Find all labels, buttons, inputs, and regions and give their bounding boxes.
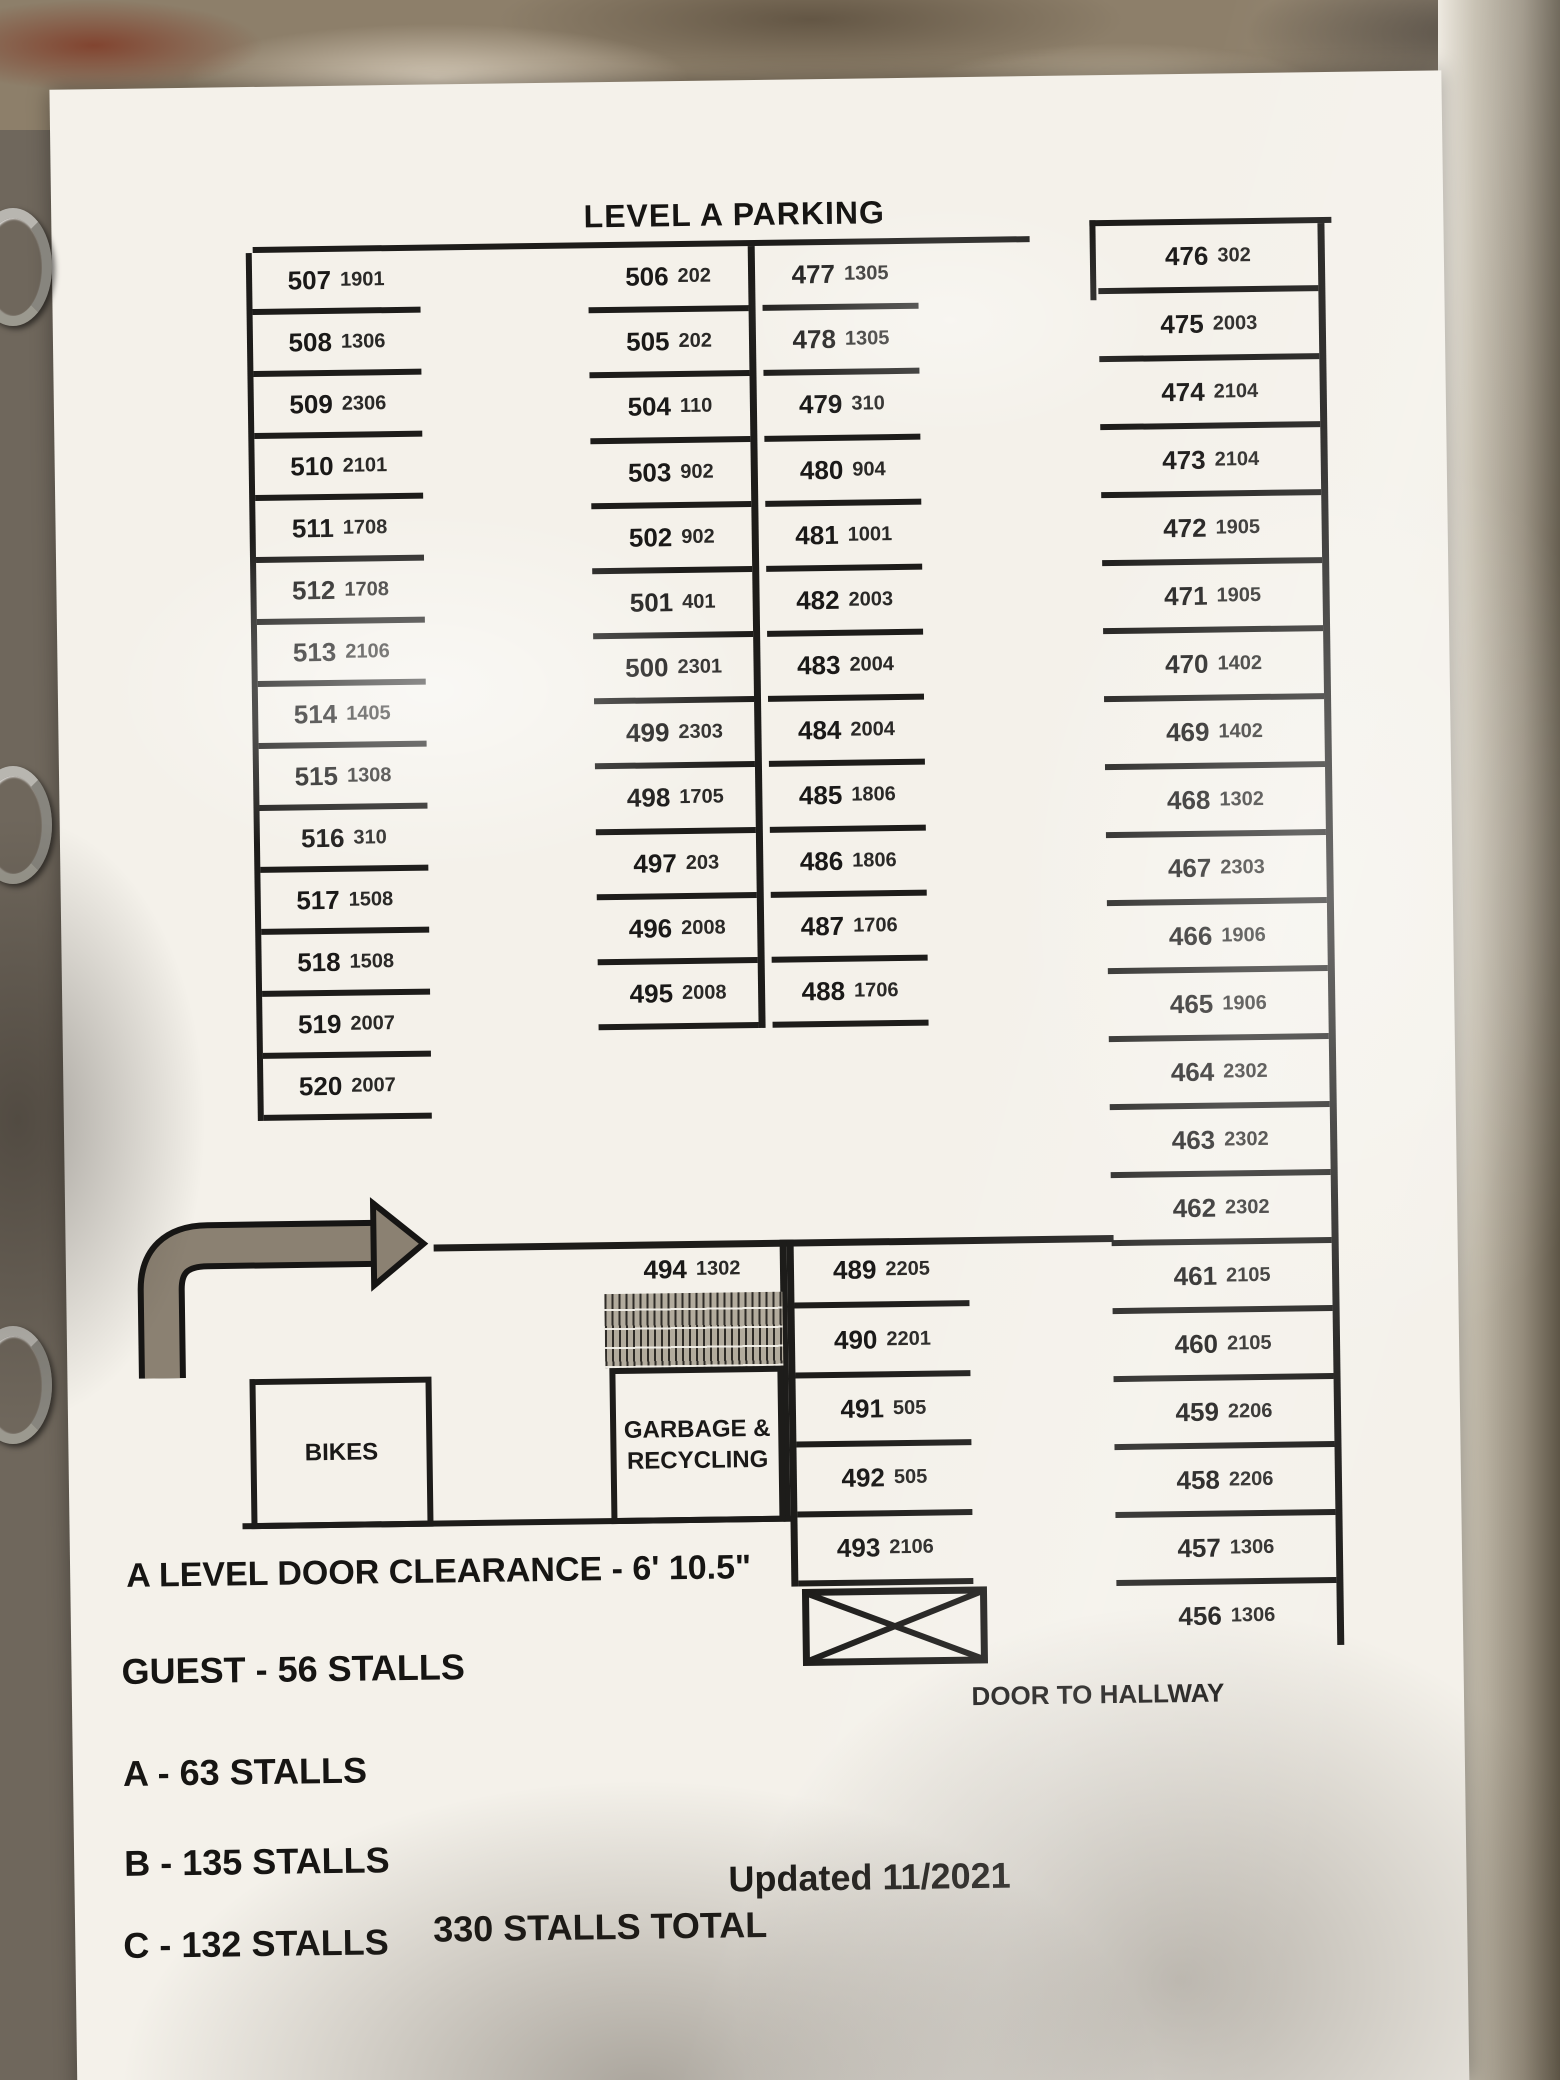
unit-number: 1508 [349,888,394,912]
stall-number: 483 [797,650,841,682]
bikes-label: BIKES [305,1438,379,1467]
unit-number: 1706 [854,979,899,1003]
stall-number: 497 [633,848,677,880]
stall-row: 491505 [796,1376,972,1448]
garbage-label-line2: RECYCLING [627,1444,769,1477]
stall-row: 479310 [764,374,921,441]
stall-number: 509 [289,388,333,420]
stall-row: 501401 [592,572,753,639]
stall-number: 516 [301,822,345,854]
stall-row: 516310 [260,809,429,873]
unit-number: 904 [852,458,886,481]
stall-row: 4701402 [1103,631,1324,702]
stall-row: 5111708 [255,499,424,563]
stall-row: 5202007 [263,1057,432,1121]
stall-column-507-520: 5071901508130650923065102101511170851217… [246,251,432,1121]
updated-date-note: Updated 11/2021 [728,1855,1011,1901]
unit-number: 110 [680,395,713,418]
door-clearance-note: A LEVEL DOOR CLEARANCE - 6' 10.5" [126,1548,751,1596]
unit-number: 2007 [351,1074,396,1098]
unit-number: 2104 [1214,379,1259,403]
unit-number: 1906 [1221,923,1266,947]
stall-number: 466 [1169,920,1213,952]
stall-row: 4992303 [594,702,755,769]
stall-row: 4871706 [771,895,928,962]
unit-number: 1405 [346,702,391,726]
stall-row: 4822003 [766,570,923,637]
unit-number: 1708 [343,516,388,540]
unit-number: 505 [894,1466,928,1489]
parking-map-sheet: LEVEL A PARKING 507190150813065092306510… [49,70,1469,2080]
stall-number: 469 [1166,716,1210,748]
stall-number: 459 [1175,1396,1219,1428]
unit-number: 2007 [350,1012,395,1036]
unit-number: 2302 [1223,1059,1268,1083]
bikes-room: BIKES [249,1377,433,1530]
stall-number: 501 [630,587,674,619]
unit-number: 1901 [340,268,385,292]
stall-number: 496 [629,913,673,945]
door-to-hallway-label: DOOR TO HALLWAY [943,1677,1253,1712]
stall-number: 512 [292,574,336,606]
guest-stalls-note: GUEST - 56 STALLS [121,1646,465,1693]
stall-row: 4832004 [767,635,924,702]
stall-number: 475 [1160,308,1204,340]
binder-photo: LEVEL A PARKING 507190150813065092306510… [0,0,1560,2080]
stall-row: 5071901 [252,251,421,315]
stall-number: 458 [1176,1464,1220,1496]
stall-row: 5132106 [257,623,426,687]
unit-number: 2201 [886,1327,931,1351]
unit-number: 1905 [1215,515,1260,539]
stall-row: 4721905 [1101,495,1322,566]
page-title: LEVEL A PARKING [534,193,934,236]
stairs-hatch [604,1292,783,1368]
stall-column-506-495: 5062025052025041105039025029025014015002… [588,246,766,1030]
stall-row: 5151308 [259,747,428,811]
stall-number: 461 [1173,1260,1217,1292]
stall-number: 490 [834,1324,878,1356]
stall-row: 497203 [596,833,757,900]
stall-row: 4952008 [598,963,759,1030]
stall-number: 493 [837,1532,881,1564]
unit-number: 1806 [852,849,897,873]
unit-number: 2105 [1227,1331,1272,1355]
unit-number: 2206 [1228,1399,1273,1423]
stall-number: 513 [293,636,337,668]
stall-row: 5192007 [262,995,431,1059]
level-a-parking-diagram: LEVEL A PARKING 507190150813065092306510… [0,0,1560,2080]
unit-number: 2004 [849,653,894,677]
level-a-stalls-note: A - 63 STALLS [123,1750,368,1795]
stall-row: 4711905 [1102,563,1323,634]
stall-number: 488 [801,976,845,1008]
unit-number: 1508 [349,950,394,974]
unit-number: 302 [1217,244,1251,267]
stall-number: 462 [1172,1192,1216,1224]
stall-number: 485 [799,780,843,812]
stall-row: 4681302 [1105,767,1326,838]
stall-number: 473 [1162,444,1206,476]
stall-number: 507 [287,264,331,296]
stall-row: 4851806 [769,765,926,832]
stall-number: 499 [626,717,670,749]
stall-number: 472 [1163,512,1207,544]
stall-row: 494 1302 [604,1246,781,1292]
unit-number: 2205 [885,1258,930,1282]
stall-number: 476 [1165,240,1209,272]
stall-row: 5181508 [261,933,430,997]
stall-number: 494 [643,1254,687,1286]
stall-row: 5102101 [254,437,423,501]
stall-row: 5081306 [253,313,422,377]
stall-number: 465 [1170,988,1214,1020]
unit-number: 2306 [342,392,387,416]
stall-row: 4632302 [1110,1107,1331,1178]
stall-column-477-488: 4771305478130547931048090448110014822003… [762,244,929,1028]
unit-number: 1402 [1217,651,1262,675]
door-symbol [801,1586,988,1667]
stall-row: 4622302 [1111,1175,1332,1246]
stall-row: 4602105 [1113,1311,1334,1382]
stall-row: 4752003 [1098,291,1319,362]
unit-number: 2302 [1225,1195,1270,1219]
stall-number: 520 [299,1070,343,1102]
stall-row: 4892205 [794,1237,970,1309]
stall-number: 506 [625,261,669,293]
stall-number: 495 [629,978,673,1010]
stall-row: 503902 [590,442,751,509]
stall-number: 500 [625,652,669,684]
unit-number: 202 [677,265,711,288]
stall-number: 486 [800,845,844,877]
stall-row: 480904 [764,439,921,506]
stall-number: 456 [1178,1600,1222,1632]
stall-row: 4902201 [795,1306,971,1378]
unit-number: 1302 [696,1257,741,1281]
unit-number: 2004 [850,718,895,742]
unit-number: 202 [678,330,712,353]
stall-row: 4642302 [1109,1039,1330,1110]
stall-number: 503 [628,457,672,489]
stall-row: 4742104 [1099,359,1320,430]
stall-row: 4732104 [1100,427,1321,498]
unit-number: 1708 [344,578,389,602]
stall-row: 4561306 [1116,1583,1337,1648]
stall-number: 478 [792,324,836,356]
stall-row: 5092306 [253,375,422,439]
unit-number: 2105 [1226,1263,1271,1287]
unit-number: 1305 [845,327,890,351]
stall-number: 514 [294,698,338,730]
unit-number: 1308 [347,764,392,788]
stall-number: 504 [627,392,671,424]
unit-number: 2101 [342,454,387,478]
unit-number: 2106 [889,1535,934,1559]
stall-number: 511 [292,512,334,544]
stall-number: 492 [841,1463,885,1495]
stall-row: 502902 [591,507,752,574]
stall-number: 519 [298,1008,342,1040]
stall-row: 4582206 [1115,1447,1336,1518]
garbage-label-line1: GARBAGE & [624,1413,771,1446]
unit-number: 1706 [853,914,898,938]
turn-right-arrow-icon [121,1191,436,1395]
stall-number: 505 [626,326,670,358]
unit-number: 401 [682,590,716,613]
stall-number: 502 [629,522,673,554]
stall-row: 4612105 [1112,1243,1333,1314]
unit-number: 1905 [1216,583,1261,607]
stall-row: 505202 [589,311,750,378]
stall-row: 4661906 [1107,903,1328,974]
stall-number: 460 [1174,1328,1218,1360]
stall-number: 480 [800,454,844,486]
unit-number: 203 [686,851,720,874]
stall-number: 508 [288,326,332,358]
stall-number: 470 [1165,648,1209,680]
unit-number: 2008 [682,981,727,1005]
stall-number: 464 [1171,1056,1215,1088]
stall-row: 506202 [588,246,749,313]
unit-number: 2003 [848,588,893,612]
stall-number: 510 [290,450,334,482]
stall-row: 5171508 [260,871,429,935]
stall-row: 4811001 [765,504,922,571]
unit-number: 1705 [679,786,724,810]
unit-number: 1306 [1231,1603,1276,1627]
stall-row: 5002301 [593,637,754,704]
stall-row: 4861806 [770,830,927,897]
stall-row: 5121708 [256,561,425,625]
stall-row: 4881706 [772,961,929,1028]
unit-number: 2003 [1213,311,1258,335]
stall-number: 468 [1167,784,1211,816]
unit-number: 1305 [844,262,889,286]
stall-row: 4962008 [597,898,758,965]
stall-number: 489 [833,1255,877,1287]
level-c-stalls-note: C - 132 STALLS [123,1921,389,1967]
stall-row: 4781305 [763,309,920,376]
unit-number: 2206 [1229,1467,1274,1491]
unit-number: 505 [893,1397,927,1420]
stall-number: 457 [1177,1532,1221,1564]
stall-number: 463 [1172,1124,1216,1156]
stall-row: 4932106 [797,1515,973,1587]
unit-number: 1806 [851,784,896,808]
unit-number: 1306 [341,330,386,354]
unit-number: 1402 [1218,719,1263,743]
stall-number: 491 [840,1393,884,1425]
stall-row: 4672303 [1106,835,1327,906]
stall-number: 467 [1168,852,1212,884]
stall-row: 4842004 [768,700,925,767]
garbage-recycling-room: GARBAGE & RECYCLING [609,1366,785,1524]
stall-column-476-456: 4763024752003474210447321044721905471190… [1097,223,1344,1648]
stall-row: 4981705 [595,767,756,834]
stall-row: 476302 [1097,223,1318,294]
stall-number: 481 [795,520,839,552]
stall-number: 515 [294,760,338,792]
stall-number: 482 [796,585,840,617]
stall-number: 518 [297,946,341,978]
unit-number: 1306 [1230,1535,1275,1559]
stall-row: 504110 [590,376,751,443]
stall-number: 477 [791,259,835,291]
stall-number: 487 [801,911,845,943]
unit-number: 310 [353,826,387,849]
unit-number: 2106 [345,640,390,664]
stall-number: 498 [627,783,671,815]
stall-row: 4592206 [1114,1379,1335,1450]
unit-number: 1001 [848,523,893,547]
unit-number: 2303 [678,721,723,745]
unit-number: 2008 [681,916,726,940]
unit-number: 1906 [1222,991,1267,1015]
right-column-left-stub [1089,220,1096,300]
stall-row: 4771305 [762,244,919,311]
stall-number: 479 [799,389,843,421]
unit-number: 902 [681,525,715,548]
total-stalls-note: 330 STALLS TOTAL [433,1904,768,1951]
unit-number: 1302 [1219,787,1264,811]
unit-number: 2302 [1224,1127,1269,1151]
stall-number: 484 [798,715,842,747]
unit-number: 2301 [677,656,722,680]
stall-row: 4691402 [1104,699,1325,770]
stall-number: 471 [1164,580,1208,612]
unit-number: 2303 [1220,855,1265,879]
stall-row: 4571306 [1115,1515,1336,1586]
stall-row: 4651906 [1108,971,1329,1042]
stall-column-489-493: 489220549022014915054925054932106 [787,1237,974,1587]
level-b-stalls-note: B - 135 STALLS [124,1839,390,1885]
stall-row: 5141405 [258,685,427,749]
stall-row: 492505 [796,1445,972,1517]
unit-number: 2104 [1214,447,1259,471]
unit-number: 310 [851,393,885,416]
stall-number: 517 [296,884,340,916]
stall-number: 474 [1161,376,1205,408]
unit-number: 902 [680,460,714,483]
